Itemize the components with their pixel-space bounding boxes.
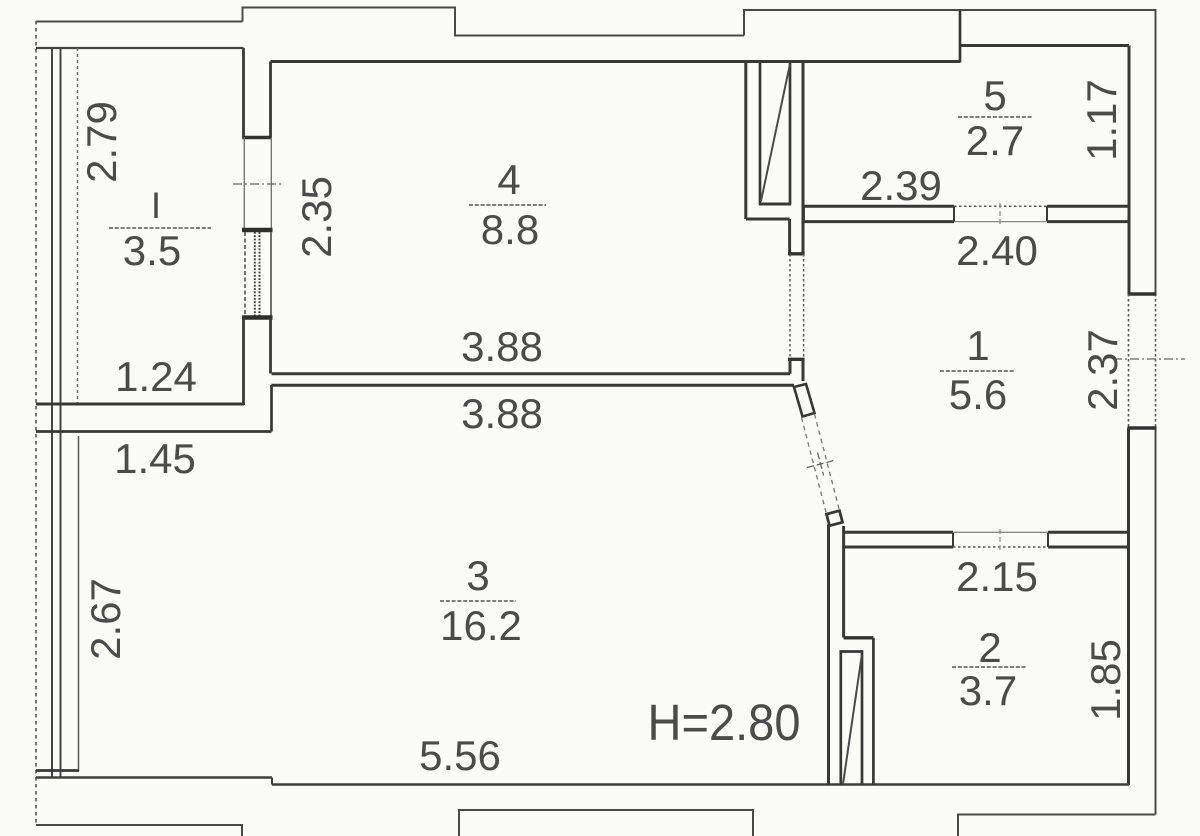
svg-text:2.40: 2.40 xyxy=(956,227,1038,274)
svg-text:2.67: 2.67 xyxy=(82,578,129,660)
svg-text:5.56: 5.56 xyxy=(419,732,501,779)
svg-text:1.24: 1.24 xyxy=(115,353,197,400)
svg-text:I: I xyxy=(151,185,161,226)
svg-text:1.85: 1.85 xyxy=(1082,639,1129,721)
svg-text:2.79: 2.79 xyxy=(78,101,125,183)
svg-text:8.8: 8.8 xyxy=(481,206,539,253)
svg-text:16.2: 16.2 xyxy=(440,602,522,649)
svg-text:2.39: 2.39 xyxy=(860,162,942,209)
svg-text:2.7: 2.7 xyxy=(966,117,1024,164)
svg-text:3.7: 3.7 xyxy=(959,667,1017,714)
svg-text:4: 4 xyxy=(497,156,520,203)
svg-text:3: 3 xyxy=(466,552,489,599)
svg-text:1.17: 1.17 xyxy=(1078,79,1125,161)
svg-text:3.88: 3.88 xyxy=(461,390,543,437)
svg-text:2.15: 2.15 xyxy=(956,553,1038,600)
svg-text:1.45: 1.45 xyxy=(114,435,196,482)
svg-text:5.6: 5.6 xyxy=(949,371,1007,418)
svg-text:1: 1 xyxy=(966,322,989,369)
svg-text:5: 5 xyxy=(983,72,1006,119)
svg-text:2.37: 2.37 xyxy=(1079,329,1126,411)
svg-text:H=2.80: H=2.80 xyxy=(648,694,801,751)
svg-text:2: 2 xyxy=(978,624,1001,671)
svg-text:3.88: 3.88 xyxy=(461,323,543,370)
svg-text:2.35: 2.35 xyxy=(293,176,340,258)
svg-text:3.5: 3.5 xyxy=(123,227,181,274)
